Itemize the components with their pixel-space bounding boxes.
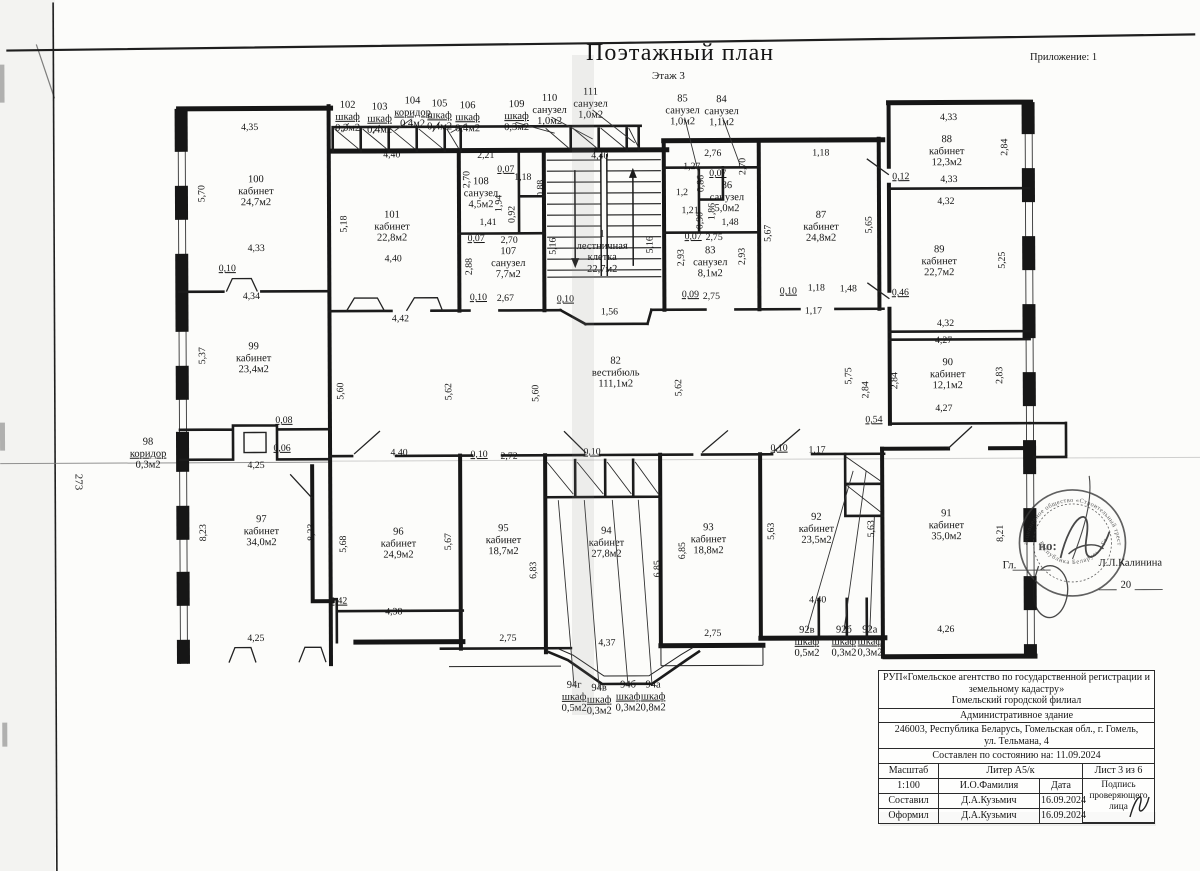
dimension-label: 5,25 — [997, 252, 1008, 269]
dimension-label: 0,10 — [780, 286, 797, 297]
dimension-label: 0,07 — [497, 164, 514, 175]
dimension-label: 2,67 — [497, 293, 514, 304]
room-label-104: 104коридор0,4м2 — [394, 95, 431, 130]
dimension-label: 5,62 — [443, 383, 454, 400]
dimension-label: 4,37 — [598, 637, 615, 648]
dimension-label: 0,09 — [682, 289, 699, 300]
address-line2: ул. Тельмана, 4 — [881, 736, 1152, 748]
dimension-label: 5,65 — [864, 216, 875, 233]
dimension-label: 2,70 — [501, 235, 518, 246]
room-label-97: 97кабинет34,0м2 — [244, 514, 280, 549]
dimension-label: 0,06 — [273, 443, 290, 454]
org-branch: Гомельский городской филиал — [952, 695, 1082, 706]
compiled-name: Д.А.Кузьмич — [939, 794, 1040, 809]
dimension-label: 5,70 — [196, 185, 207, 202]
dimension-label: 2,70 — [461, 171, 472, 188]
room-label-94: 94кабинет27,8м2 — [589, 526, 625, 561]
dimension-label: 2,70 — [737, 158, 748, 175]
dimension-label: 0,07 — [685, 231, 702, 242]
dimension-label: 5,16 — [548, 238, 559, 255]
dimension-label: 1,17 — [808, 445, 825, 456]
title-block-grid: Масштаб Литер А5/к Лист 3 из 6 1:100 И.О… — [879, 764, 1154, 823]
room-label-95: 95кабинет18,7м2 — [486, 523, 522, 558]
dimension-label: 5,18 — [339, 216, 350, 233]
org-row: РУП«Гомельское агентство по государствен… — [879, 671, 1154, 709]
stamp-center-text: но: — [1038, 538, 1056, 553]
room-label-93: 93кабинет18,8м2 — [691, 522, 727, 557]
dimension-label: 2,84 — [999, 139, 1010, 156]
dimension-label: 4,27 — [935, 403, 952, 414]
stamp-gl-label: Гл. — [1003, 559, 1017, 571]
dimension-label: 1,2 — [676, 187, 688, 198]
dimension-label: 0,54 — [865, 414, 882, 425]
dimension-label: 4,42 — [392, 313, 409, 324]
compiled-date: 16.09.2024 — [1040, 794, 1083, 809]
dimension-label: 0,42 — [330, 596, 347, 607]
scanned-floor-plan-page: акционерное общество «Строительный трест… — [0, 0, 1200, 871]
title-block: РУП«Гомельское агентство по государствен… — [878, 670, 1155, 824]
checker-signature — [1122, 787, 1152, 821]
dimension-label: 1,18 — [808, 283, 825, 294]
dimension-label: 1,27 — [683, 161, 700, 172]
room-label-107: 107санузел7,7м2 — [491, 246, 526, 281]
date-column-header: Дата — [1040, 779, 1083, 794]
dimension-label: 2,75 — [706, 232, 723, 243]
stamp-name: Л.Л.Калинина — [1099, 558, 1163, 569]
drafted-label: Оформил — [879, 809, 939, 823]
dimension-label: 5,16 — [645, 236, 656, 253]
dimension-label: 4,33 — [248, 243, 265, 254]
room-label-82: 82вестибюль111,1м2 — [592, 356, 640, 391]
page-title: Поэтажный план — [586, 40, 774, 67]
room-label-106: 106шкаф0,4м2 — [455, 100, 480, 135]
dimension-label: 4,40 — [390, 447, 407, 458]
dimension-label: 2,88 — [464, 258, 475, 275]
dimension-label: 4,38 — [385, 606, 402, 617]
name-column-header: И.О.Фамилия — [939, 779, 1040, 794]
floor-subtitle: Этаж 3 — [652, 70, 685, 82]
dimension-label: 2,76 — [704, 148, 721, 159]
room-label-85: 85санузел1,0м2 — [665, 93, 700, 128]
building-row: Административное здание — [879, 709, 1154, 724]
org-name: РУП«Гомельское агентство по государствен… — [883, 672, 1150, 695]
room-label-103: 103шкаф0,4м2 — [367, 102, 392, 137]
dimension-label: 0,90 — [695, 212, 706, 229]
room-label-91: 91кабинет35,0м2 — [929, 508, 965, 543]
dimension-label: 5,62 — [673, 379, 684, 396]
room-label-109: 109шкаф0,3м2 — [504, 99, 529, 134]
room-label-100: 100кабинет24,7м2 — [238, 174, 274, 209]
status-row: Составлен по состоянию на: 11.09.2024 — [879, 749, 1154, 764]
dimension-label: 5,67 — [443, 533, 454, 550]
compiled-label: Составил — [879, 794, 939, 809]
dimension-label: 0,12 — [892, 171, 909, 182]
sheet-cell: Лист 3 из 6 — [1083, 764, 1154, 779]
dimension-label: 6,85 — [677, 542, 688, 559]
dimension-label: 8,23 — [306, 524, 317, 541]
dimension-label: 5,60 — [530, 385, 541, 402]
stamp-ring-bottom: Республика Беларусь · Гомель — [0, 0, 1110, 571]
scale-value: 1:100 — [879, 779, 939, 794]
stamp-year: 20 — [1121, 580, 1132, 591]
dimension-label: 6,83 — [528, 562, 539, 579]
signature-cell: Подпись проверяющего лица — [1083, 779, 1154, 823]
dimension-label: 0,46 — [892, 287, 909, 298]
svg-text:Республика Беларусь · Гомель: Республика Беларусь · Гомель — [0, 0, 1110, 571]
dimension-label: 1,18 — [514, 172, 531, 183]
dimension-label: 1,86 — [706, 203, 717, 220]
dimension-label: 4,32 — [937, 318, 954, 329]
room-label-88: 88кабинет12,3м2 — [929, 134, 965, 169]
room-label-84: 84санузел1,1м2 — [704, 94, 739, 129]
dimension-label: 4,26 — [937, 624, 954, 635]
dimension-label: 1,56 — [601, 306, 618, 317]
dimension-label: 5,60 — [335, 383, 346, 400]
dimension-label: 2,93 — [737, 248, 748, 265]
dimension-label: 2,93 — [676, 249, 687, 266]
room-label-90: 90кабинет12,1м2 — [930, 357, 966, 392]
dimension-label: 0,10 — [219, 263, 236, 274]
room-label-94а: 94ашкаф0,8м2 — [641, 679, 666, 714]
dimension-label: 2,75 — [704, 628, 721, 639]
left-fold-line — [53, 2, 57, 871]
dimension-label: 2,21 — [477, 150, 494, 161]
dimension-label: 6,85 — [652, 560, 663, 577]
room-label-83: 83санузел8,1м2 — [693, 245, 728, 280]
dimension-label: 4,33 — [940, 112, 957, 123]
dimension-label: 0,08 — [275, 415, 292, 426]
room-label-98: 98коридор0,3м2 — [130, 437, 167, 472]
dimension-label: 4,40 — [385, 253, 402, 264]
dimension-label: 4,40 — [383, 149, 400, 160]
dimension-label: 4,27 — [935, 335, 952, 346]
dimension-label: 1,18 — [812, 147, 829, 158]
dimension-label: 8,23 — [198, 524, 209, 541]
dimension-label: 2,83 — [994, 367, 1005, 384]
corner-artifact — [36, 44, 54, 98]
room-label-99: 99кабинет23,4м2 — [236, 341, 272, 376]
dimension-label: 5,37 — [197, 347, 208, 364]
annex-note: Приложение: 1 — [1030, 52, 1097, 63]
scan-streak — [572, 55, 594, 715]
dimension-label: 5,75 — [843, 367, 854, 384]
dimension-label: 4,25 — [247, 633, 264, 644]
scale-label: Масштаб — [879, 764, 939, 779]
dimension-label: 0,88 — [535, 180, 546, 197]
room-label-92в: 92вшкаф0,5м2 — [794, 625, 819, 660]
dimension-label: 2,75 — [499, 633, 516, 644]
stair-arrow-up — [629, 168, 637, 178]
room-label-94б: 94бшкаф0,3м2 — [616, 680, 641, 715]
dimension-label: 0,07 — [468, 233, 485, 244]
margin-note: 273 — [72, 474, 84, 491]
dimension-label: 2,75 — [703, 291, 720, 302]
room-label-89: 89кабинет22,7м2 — [921, 244, 957, 279]
dimension-label: 4,35 — [241, 122, 258, 133]
dimension-label: 4,33 — [940, 174, 957, 185]
room-label-92а: 92ашкаф0,3м2 — [857, 624, 882, 659]
dimension-label: 1,48 — [840, 283, 857, 294]
edge-smudges — [0, 65, 7, 747]
dimension-label: 1,48 — [721, 217, 738, 228]
dimension-label: 1,17 — [805, 306, 822, 317]
dimension-label: 5,68 — [338, 536, 349, 553]
dimension-label: 1,41 — [479, 217, 496, 228]
dimension-label: 4,40 — [809, 595, 826, 606]
leader-lines — [343, 109, 876, 689]
dimension-label: 2,84 — [889, 372, 900, 389]
dimension-label: 5,63 — [766, 523, 777, 540]
dimension-label: 4,32 — [937, 196, 954, 207]
dimension-label: 4,25 — [248, 460, 265, 471]
drafted-date: 16.09.2024 — [1040, 809, 1083, 823]
room-label-105: 105шкаф0,4м2 — [427, 98, 452, 133]
room-label-110: 110санузел1,0м2 — [532, 93, 567, 128]
room-label-92б: 92бшкаф0,3м2 — [831, 625, 856, 660]
room-label-102: 102шкаф0,3м2 — [335, 100, 360, 135]
dimension-label: 0,92 — [506, 206, 517, 223]
dimension-label: 0,10 — [770, 443, 787, 454]
drafted-name: Д.А.Кузьмич — [939, 809, 1040, 823]
address-row: 246003, Республика Беларусь, Гомельская … — [879, 723, 1154, 749]
dimension-label: 2,72 — [500, 451, 517, 462]
room-label-87: 87кабинет24,8м2 — [803, 210, 839, 245]
dimension-label: 5,63 — [866, 520, 877, 537]
dimension-label: 0,10 — [470, 292, 487, 303]
dimension-label: 5,67 — [763, 225, 774, 242]
room-label-101: 101кабинет22,8м2 — [374, 210, 410, 245]
dimension-label: 2,84 — [860, 381, 871, 398]
dimension-label: 8,21 — [995, 525, 1006, 542]
dimension-label: 4,34 — [243, 291, 260, 302]
room-label-92: 92кабинет23,5м2 — [799, 512, 835, 547]
room-label-96: 96кабинет24,9м2 — [381, 526, 417, 561]
liter-cell: Литер А5/к — [939, 764, 1083, 779]
dimension-label: 0,10 — [470, 449, 487, 460]
dimension-label: 0,07 — [709, 168, 726, 179]
dimension-label: 0,86 — [695, 175, 706, 192]
address-line1: 246003, Республика Беларусь, Гомельская … — [881, 724, 1152, 736]
dimension-label: 1,94 — [493, 195, 504, 212]
